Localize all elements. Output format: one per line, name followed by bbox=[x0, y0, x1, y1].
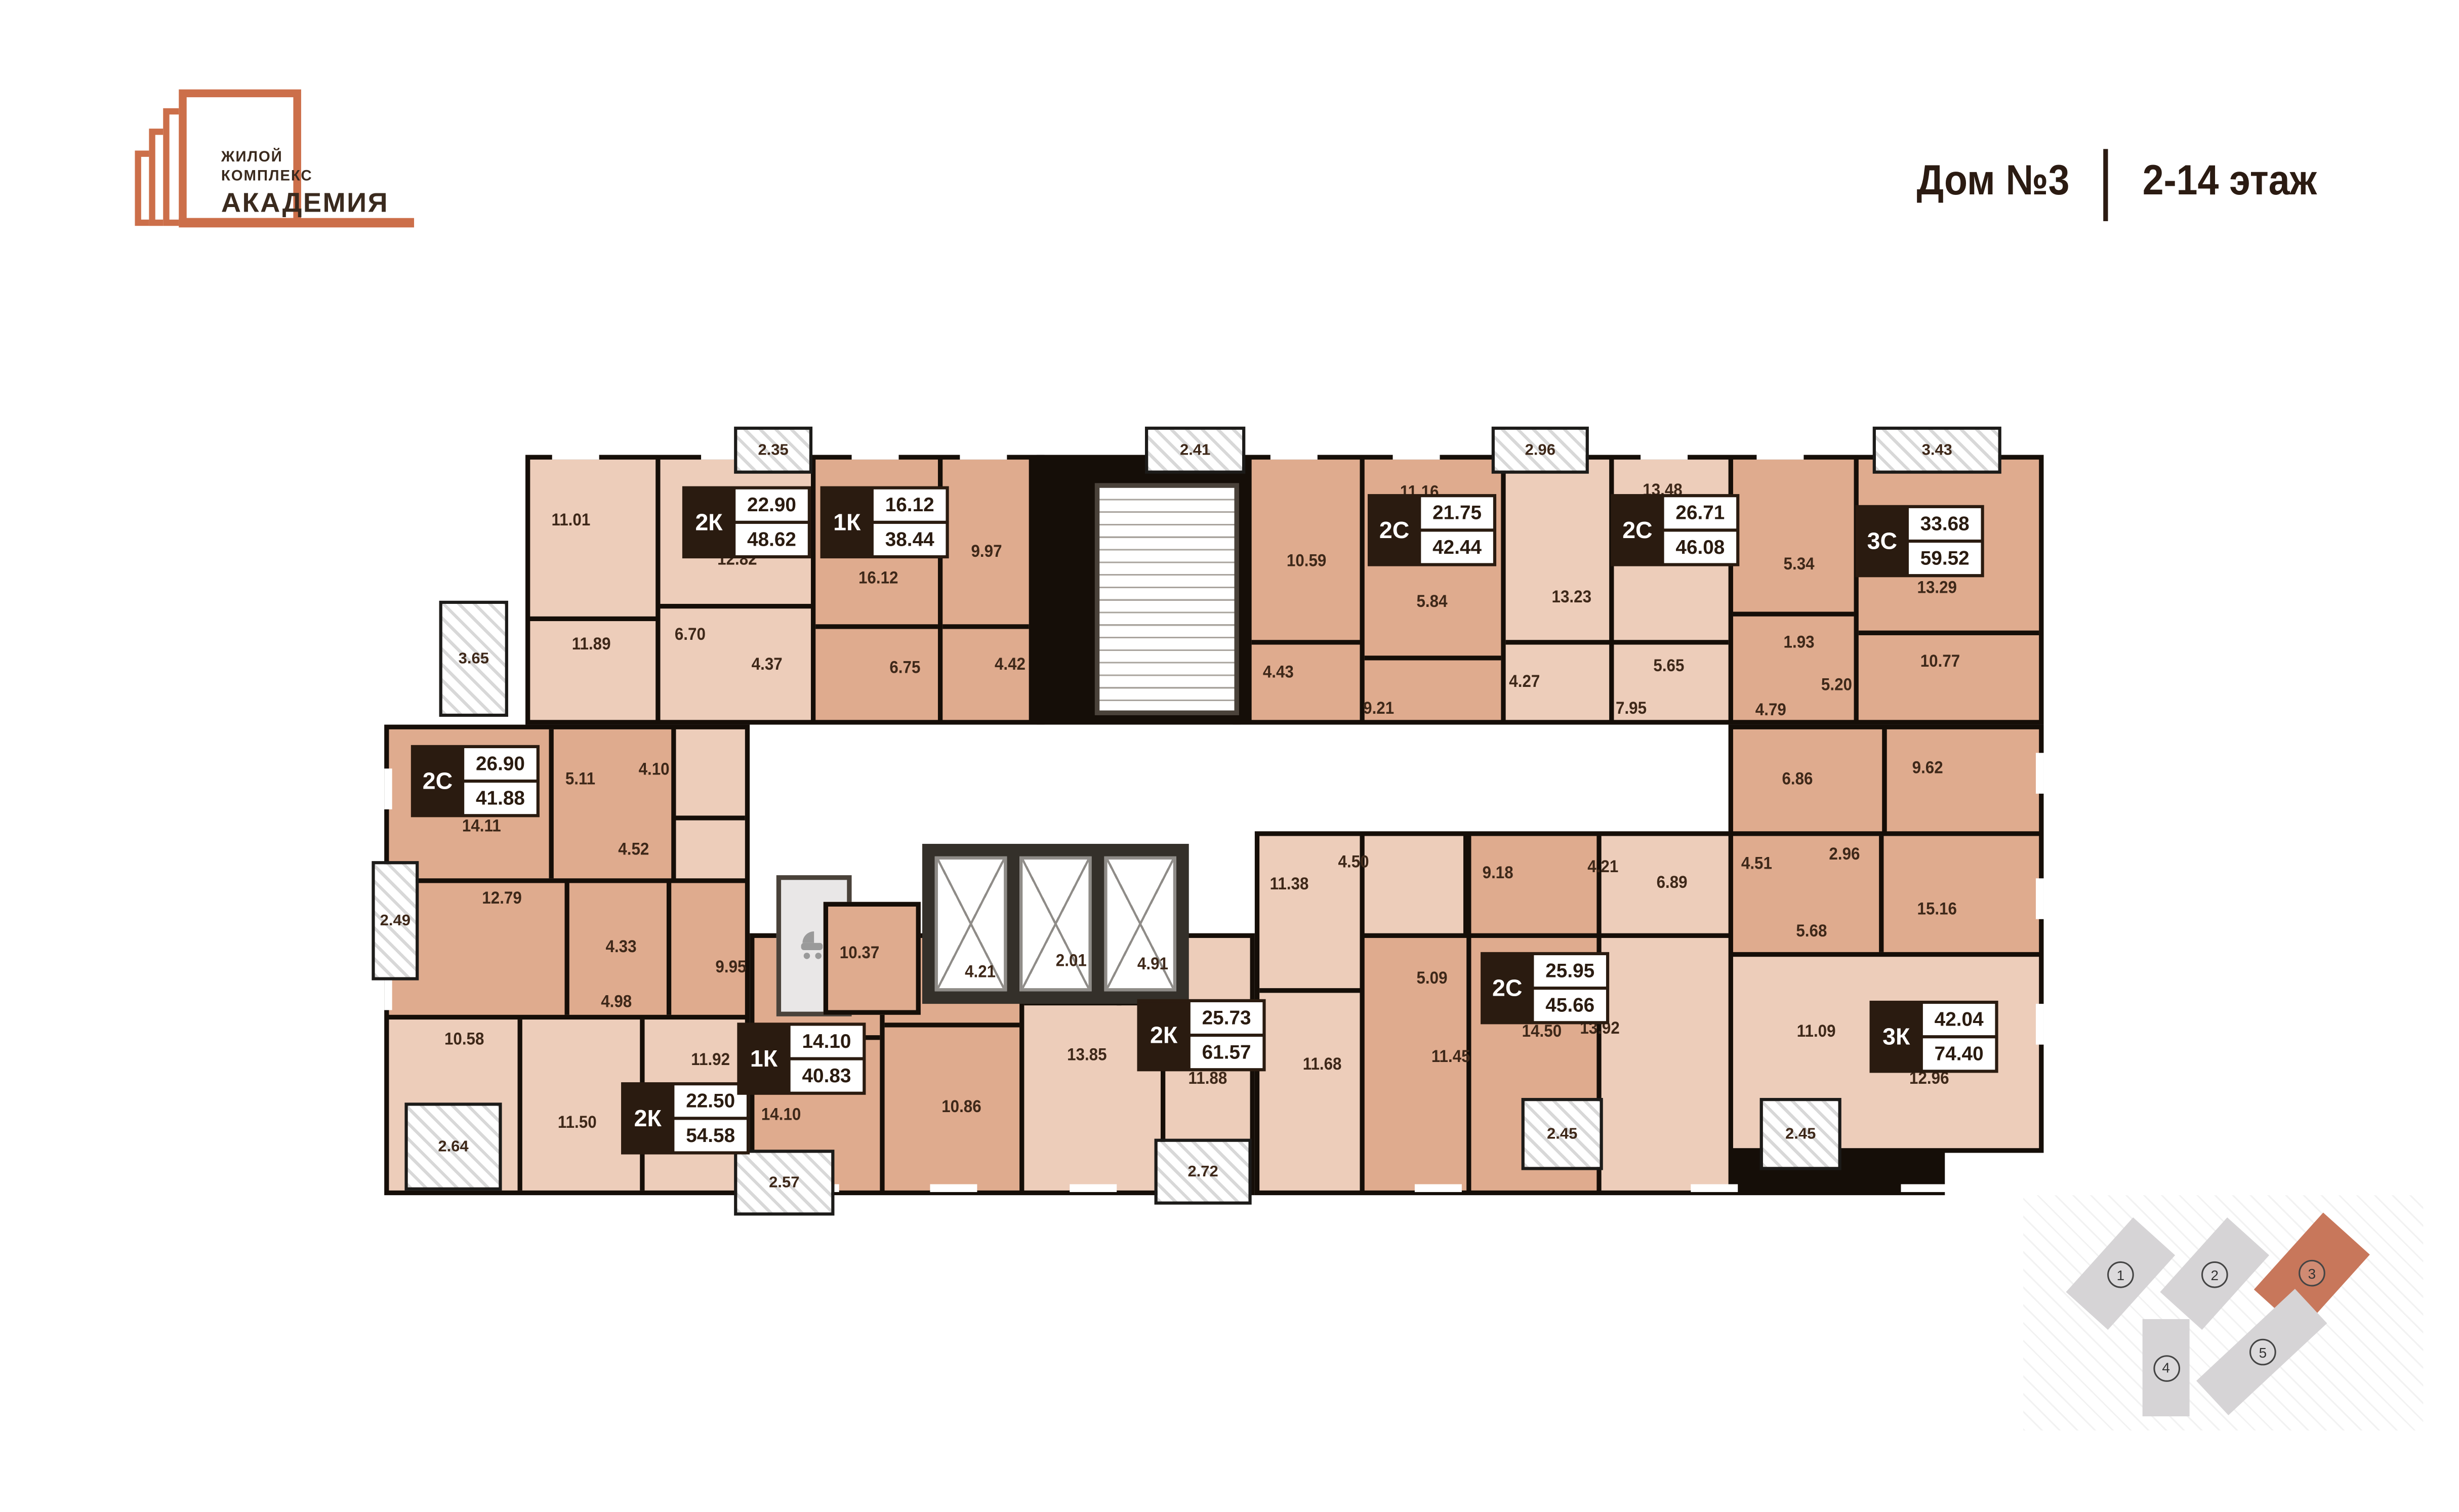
apartment-type: 2К bbox=[1140, 1002, 1187, 1068]
logo-tagline-1: ЖИЛОЙ bbox=[221, 149, 283, 166]
balcony-area-label: 2.72 bbox=[1187, 1163, 1218, 1180]
room-area-label: 5.20 bbox=[1821, 676, 1852, 694]
room-area-label: 4.51 bbox=[1741, 855, 1772, 874]
room-area-label: 15.16 bbox=[1917, 901, 1957, 919]
staircase bbox=[1095, 483, 1239, 715]
apartment-areas: 26.71 46.08 bbox=[1664, 497, 1737, 563]
apartment-living-area: 21.75 bbox=[1421, 497, 1493, 528]
wall bbox=[676, 815, 745, 820]
wall bbox=[885, 1023, 1019, 1027]
room-area-label: 5.65 bbox=[1653, 657, 1684, 676]
room-area bbox=[1602, 938, 1729, 1191]
apartment-badge[interactable]: 1К 14.10 40.83 bbox=[737, 1023, 866, 1095]
apartment-total-area: 74.40 bbox=[1923, 1038, 1995, 1070]
room-area-label: 5.11 bbox=[565, 770, 595, 789]
title-divider bbox=[2103, 149, 2108, 221]
room-area-label: 4.21 bbox=[1587, 858, 1618, 877]
balcony-area-label: 2.96 bbox=[1525, 441, 1555, 459]
room-area-label: 4.98 bbox=[601, 993, 632, 1011]
room-area-label: 11.68 bbox=[1303, 1055, 1342, 1074]
elevator-shaft-block bbox=[922, 844, 1189, 1004]
wall bbox=[549, 729, 554, 878]
wall bbox=[1859, 631, 2039, 635]
balcony-area-label: 2.49 bbox=[380, 912, 411, 929]
room-area bbox=[1365, 836, 1463, 933]
apartment-total-area: 40.83 bbox=[791, 1060, 863, 1092]
window bbox=[1756, 452, 1804, 459]
apartment-type: 3С bbox=[1859, 508, 1906, 574]
window bbox=[930, 1184, 977, 1192]
balcony-area-label: 2.41 bbox=[1180, 441, 1210, 459]
apartment-type: 2К bbox=[624, 1085, 671, 1151]
balcony: 2.72 bbox=[1155, 1139, 1252, 1205]
apartment-total-area: 59.52 bbox=[1909, 543, 1981, 574]
apartment-badge[interactable]: 1К 16.12 38.44 bbox=[821, 486, 949, 559]
apartment-type: 2К bbox=[685, 489, 732, 555]
apartment-areas: 26.90 41.88 bbox=[464, 748, 537, 814]
room-area-label: 14.10 bbox=[761, 1106, 801, 1125]
wall bbox=[1365, 656, 1501, 660]
room-area-label: 4.21 bbox=[965, 963, 996, 982]
room-area-label: 6.70 bbox=[675, 626, 706, 644]
window bbox=[1393, 452, 1440, 459]
room-area-label: 7.95 bbox=[1616, 700, 1647, 718]
apartment-badge[interactable]: 2К 22.90 48.62 bbox=[682, 486, 811, 559]
room-area-label: 6.89 bbox=[1657, 874, 1688, 892]
floors-label: 2-14 этаж bbox=[2143, 157, 2317, 206]
apartment-type: 1К bbox=[824, 489, 871, 555]
apartment-total-area: 48.62 bbox=[735, 524, 808, 555]
room-area-label: 5.68 bbox=[1796, 922, 1827, 941]
apartment-badge[interactable]: 2С 26.71 46.08 bbox=[1611, 494, 1739, 566]
apartment-total-area: 46.08 bbox=[1664, 532, 1737, 563]
room-area-label: 2.96 bbox=[1829, 845, 1860, 864]
room-area bbox=[530, 460, 655, 617]
room-area-label: 1.93 bbox=[1784, 634, 1815, 652]
room-area bbox=[676, 729, 745, 878]
room-area-label: 5.84 bbox=[1416, 593, 1447, 611]
apartment-total-area: 41.88 bbox=[464, 783, 537, 814]
room-area-label: 9.97 bbox=[971, 543, 1002, 561]
room-area-label: 5.34 bbox=[1784, 555, 1815, 574]
balcony: 2.41 bbox=[1145, 427, 1245, 474]
balcony: 2.64 bbox=[404, 1102, 502, 1191]
balcony: 3.43 bbox=[1873, 427, 2001, 474]
room-area-label: 11.09 bbox=[1797, 1023, 1836, 1041]
room-area-label: 4.52 bbox=[618, 841, 649, 860]
balcony-area-label: 2.35 bbox=[758, 441, 788, 459]
room-area bbox=[942, 460, 1029, 720]
room-area-label: 11.50 bbox=[558, 1114, 597, 1132]
balcony-area-label: 3.65 bbox=[459, 650, 489, 667]
apartment-badge[interactable]: 2С 21.75 42.44 bbox=[1368, 494, 1496, 566]
apartment-areas: 25.95 45.66 bbox=[1534, 955, 1606, 1021]
window bbox=[852, 452, 899, 459]
apartment-living-area: 16.12 bbox=[874, 489, 946, 521]
window bbox=[1415, 1184, 1462, 1192]
elevator-icon bbox=[1019, 856, 1092, 991]
window bbox=[2036, 753, 2043, 794]
apartment-type: 3К bbox=[1873, 1004, 1920, 1070]
balcony-area-label: 2.45 bbox=[1785, 1125, 1816, 1142]
room-area-label: 13.23 bbox=[1552, 588, 1591, 607]
corridor bbox=[750, 725, 1733, 836]
minimap-building-number: 5 bbox=[2248, 1339, 2275, 1366]
apartment-type: 2С bbox=[414, 748, 461, 814]
minimap-building[interactable]: 4 bbox=[2143, 1319, 2190, 1416]
room-area-label: 14.50 bbox=[1522, 1023, 1562, 1041]
apartment-areas: 42.04 74.40 bbox=[1923, 1004, 1995, 1070]
room-area bbox=[1471, 836, 1596, 933]
room-area-label: 11.01 bbox=[552, 511, 591, 530]
logo-brand: АКАДЕМИЯ bbox=[221, 187, 389, 220]
wall bbox=[942, 624, 1029, 629]
balcony-area-label: 2.64 bbox=[438, 1138, 468, 1155]
balcony-area-label: 2.57 bbox=[769, 1174, 799, 1191]
window bbox=[2036, 878, 2043, 919]
apartment-living-area: 42.04 bbox=[1923, 1004, 1995, 1035]
apartment-total-area: 38.44 bbox=[874, 524, 946, 555]
room-area-label: 11.92 bbox=[691, 1051, 730, 1070]
wall bbox=[667, 883, 671, 1015]
floorplan-poster: ЖИЛОЙ КОМПЛЕКС АКАДЕМИЯ Дом №3 2-14 этаж bbox=[0, 0, 2459, 1512]
minimap-building-number: 3 bbox=[2299, 1259, 2325, 1286]
apartment-type: 2С bbox=[1484, 955, 1531, 1021]
room-area-label: 11.89 bbox=[572, 635, 611, 654]
apartment-living-area: 26.90 bbox=[464, 748, 537, 780]
room-area-label: 9.21 bbox=[1363, 700, 1394, 718]
apartment-areas: 25.73 61.57 bbox=[1191, 1002, 1263, 1068]
apartment-total-area: 61.57 bbox=[1191, 1037, 1263, 1068]
window bbox=[2036, 1004, 2043, 1045]
room-area-label: 4.79 bbox=[1755, 701, 1786, 720]
room-area-label: 10.58 bbox=[444, 1031, 484, 1049]
apartment-areas: 16.12 38.44 bbox=[874, 489, 946, 555]
balcony-area-label: 2.45 bbox=[1547, 1125, 1577, 1142]
wall bbox=[1252, 640, 1360, 644]
apartment-badge[interactable]: 3К 42.04 74.40 bbox=[1870, 1001, 1998, 1073]
room-area-label: 5.09 bbox=[1416, 969, 1447, 988]
balcony: 2.57 bbox=[734, 1150, 834, 1215]
room-area-label: 13.85 bbox=[1067, 1046, 1106, 1065]
room-area-label: 10.59 bbox=[1287, 552, 1326, 571]
apartment-badge[interactable]: 2К 25.73 61.57 bbox=[1137, 999, 1265, 1072]
window bbox=[384, 768, 392, 809]
room-area-label: 4.10 bbox=[639, 761, 670, 780]
room-area-label: 11.38 bbox=[1270, 875, 1309, 894]
apartment-living-area: 22.90 bbox=[735, 489, 808, 521]
apartment-living-area: 25.73 bbox=[1191, 1002, 1263, 1034]
house-title: Дом №3 bbox=[1916, 157, 2069, 206]
room-area-label: 4.27 bbox=[1509, 673, 1540, 691]
apartment-areas: 22.50 54.58 bbox=[674, 1085, 747, 1151]
apartment-badge[interactable]: 2С 26.90 41.88 bbox=[411, 745, 540, 818]
room-area-label: 4.33 bbox=[606, 938, 637, 957]
wall bbox=[1506, 640, 1729, 644]
apartment-areas: 22.90 48.62 bbox=[735, 489, 808, 555]
apartment-areas: 21.75 42.44 bbox=[1421, 497, 1493, 563]
apartment-type: 2С bbox=[1614, 497, 1661, 563]
wall bbox=[1879, 836, 1883, 952]
window bbox=[1691, 1184, 1738, 1192]
apartment-total-area: 45.66 bbox=[1534, 990, 1606, 1021]
room-area bbox=[1887, 729, 2039, 831]
balcony: 3.65 bbox=[439, 601, 508, 717]
wall bbox=[1882, 729, 1887, 831]
apartment-living-area: 33.68 bbox=[1909, 508, 1981, 540]
apartment-type: 1К bbox=[741, 1026, 788, 1091]
apartment-living-area: 26.71 bbox=[1664, 497, 1737, 528]
room-area-label: 12.79 bbox=[482, 889, 521, 908]
room-area-label: 10.86 bbox=[941, 1098, 981, 1117]
minimap-building-number: 2 bbox=[2201, 1260, 2228, 1287]
room-area bbox=[1733, 836, 2039, 952]
window bbox=[1641, 452, 1688, 459]
wall bbox=[661, 604, 811, 608]
minimap-building-number: 1 bbox=[2107, 1260, 2134, 1287]
apartment-living-area: 22.50 bbox=[674, 1085, 747, 1117]
wall bbox=[1259, 988, 1360, 993]
apartment-living-area: 14.10 bbox=[791, 1026, 863, 1057]
page: ЖИЛОЙ КОМПЛЕКС АКАДЕМИЯ Дом №3 2-14 этаж bbox=[0, 0, 2459, 1512]
apartment-badge[interactable]: 2С 25.95 45.66 bbox=[1481, 952, 1609, 1025]
apartment-areas: 14.10 40.83 bbox=[791, 1026, 863, 1091]
balcony: 2.45 bbox=[1522, 1098, 1603, 1170]
apartment-badge[interactable]: 2К 22.50 54.58 bbox=[621, 1082, 750, 1155]
apartment-total-area: 42.44 bbox=[1421, 532, 1493, 563]
room-area-label: 4.42 bbox=[995, 656, 1026, 674]
wall bbox=[564, 883, 569, 1015]
apartment-areas: 33.68 59.52 bbox=[1909, 508, 1981, 574]
balcony: 2.96 bbox=[1492, 427, 1589, 474]
room-area-label: 6.86 bbox=[1782, 770, 1813, 789]
wall bbox=[1733, 611, 1854, 616]
room-area-label: 9.95 bbox=[715, 958, 746, 977]
room-area-label: 10.77 bbox=[1920, 652, 1960, 671]
room-area-label: 4.37 bbox=[752, 656, 783, 674]
room-area-label: 11.45 bbox=[1431, 1048, 1470, 1067]
room-area-label: 14.11 bbox=[462, 817, 501, 836]
wall bbox=[518, 1019, 522, 1191]
room-area-label: 16.12 bbox=[858, 569, 898, 588]
balcony: 2.35 bbox=[734, 427, 812, 474]
apartment-total-area: 54.58 bbox=[674, 1120, 747, 1151]
window bbox=[1271, 452, 1318, 459]
room-area-label: 13.29 bbox=[1917, 579, 1957, 597]
balcony-area-label: 3.43 bbox=[1922, 441, 1952, 459]
room-area-label: 11.88 bbox=[1188, 1070, 1227, 1088]
balcony: 2.49 bbox=[372, 861, 419, 980]
wall bbox=[815, 624, 938, 629]
window bbox=[960, 452, 1007, 459]
minimap-building-number: 4 bbox=[2153, 1355, 2180, 1381]
apartment-living-area: 25.95 bbox=[1534, 955, 1606, 987]
window bbox=[552, 452, 599, 459]
room-area-label: 2.01 bbox=[1056, 952, 1087, 971]
room-area-label: 4.91 bbox=[1137, 955, 1168, 974]
balcony: 2.45 bbox=[1760, 1098, 1841, 1170]
room-area-label: 10.37 bbox=[840, 944, 879, 963]
window bbox=[1901, 1184, 1948, 1192]
room-area-label: 4.43 bbox=[1263, 664, 1294, 682]
room-area-label: 4.50 bbox=[1338, 853, 1369, 872]
apartment-type: 2С bbox=[1371, 497, 1418, 563]
room-area-label: 6.75 bbox=[889, 659, 920, 677]
room-area-label: 9.62 bbox=[1912, 759, 1943, 778]
logo-tagline-2: КОМПЛЕКС bbox=[221, 168, 313, 185]
room-area-label: 9.18 bbox=[1483, 864, 1513, 883]
apartment-badge[interactable]: 3С 33.68 59.52 bbox=[1856, 505, 1984, 578]
window bbox=[1070, 1184, 1117, 1192]
